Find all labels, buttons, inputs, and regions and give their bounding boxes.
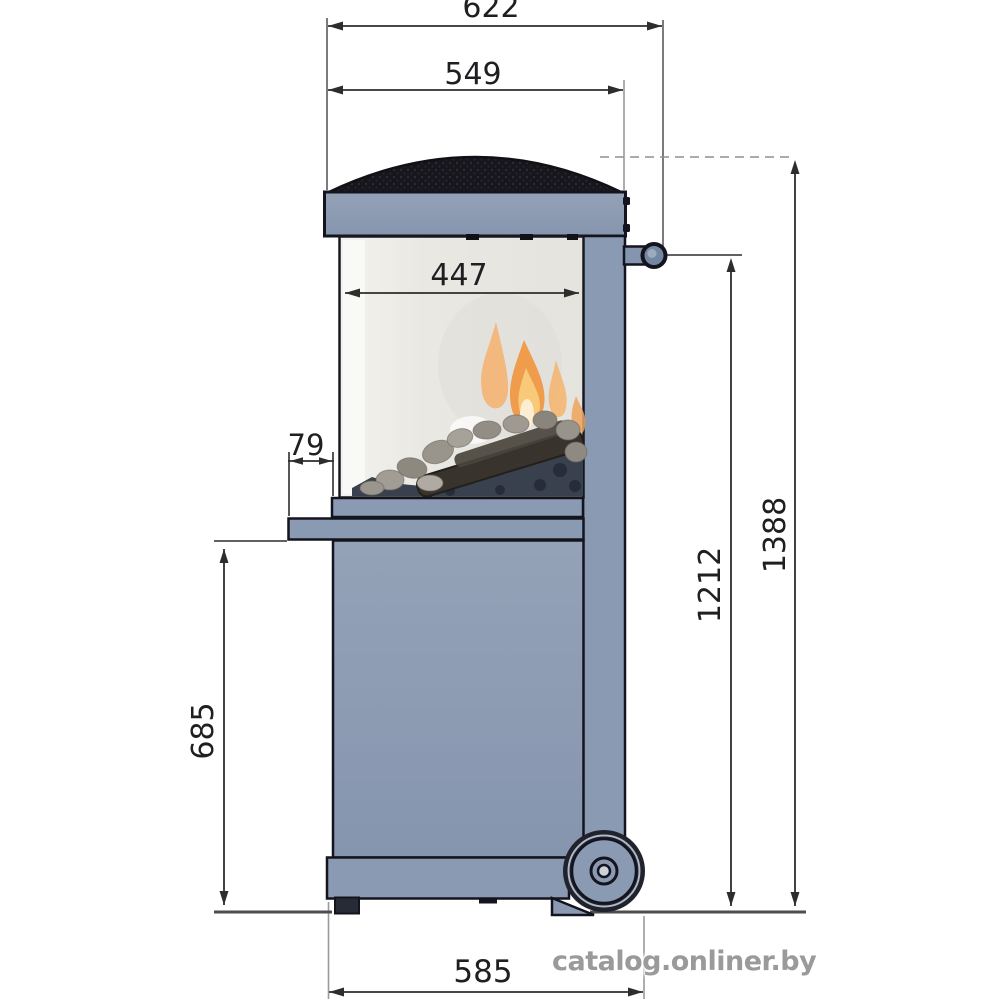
dim-label-549: 549 — [423, 60, 523, 90]
watermark-text: catalog.onliner.by — [552, 946, 816, 977]
dim-label-1212: 1212 — [696, 547, 726, 623]
dim-label-79: 79 — [276, 431, 336, 460]
right-frame-column — [583, 236, 625, 848]
dim-label-685: 685 — [189, 702, 219, 759]
dim-label-622: 622 — [441, 0, 541, 23]
dim-label-447: 447 — [409, 261, 509, 291]
wheel-axle — [598, 865, 610, 877]
fireplace-diagram-svg — [0, 0, 1000, 1000]
cap-hinge-detail-lower — [623, 224, 630, 232]
top-cap-band — [325, 192, 626, 236]
base-plinth — [327, 858, 569, 899]
dome-grill — [329, 157, 621, 192]
side-shelf — [289, 519, 584, 540]
handle-knob-highlight — [648, 249, 657, 258]
firebox-base-band — [332, 498, 583, 517]
wheel — [563, 830, 645, 912]
cap-hinge-detail-upper — [623, 197, 630, 205]
dim-label-1388: 1388 — [761, 497, 791, 573]
lower-cabinet — [333, 541, 584, 858]
technical-drawing-canvas: 622 549 447 79 685 1212 1388 585 catalog… — [0, 0, 1000, 1000]
handle — [624, 244, 666, 267]
front-foot — [335, 898, 359, 914]
dim-label-585: 585 — [433, 957, 533, 988]
rear-foot-edge — [479, 898, 497, 904]
glass-highlight — [343, 240, 365, 494]
